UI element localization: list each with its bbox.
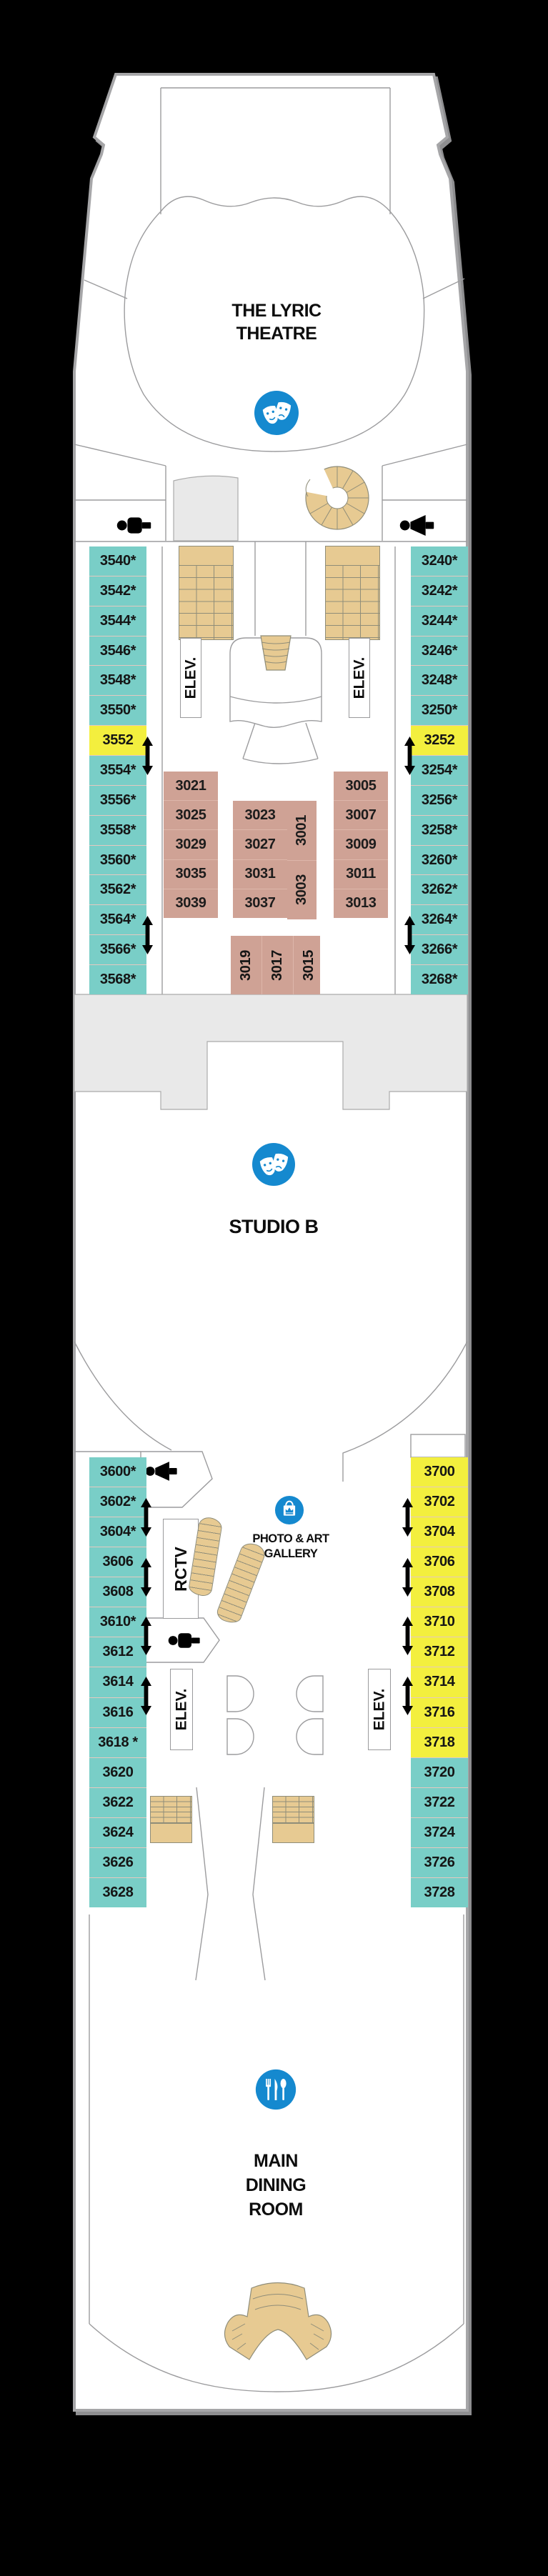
deck-connection-arrow <box>141 1617 151 1655</box>
fan-staircase-icon <box>261 636 291 670</box>
cabin-row: 3244* <box>411 606 468 636</box>
cabin-number: 3244* <box>422 613 457 629</box>
cabin-row: 3240* <box>411 546 468 576</box>
cabin-row: 3029 <box>164 829 218 859</box>
cabin-number: 3254* <box>422 762 457 779</box>
cabin-row: 3560* <box>89 845 146 875</box>
cabin-number: 3558* <box>100 822 136 839</box>
cabin-number: 3708 <box>424 1584 455 1600</box>
cabin-row: 3552 <box>89 725 146 755</box>
cabin-number: 3039 <box>176 895 206 912</box>
cabin-row: 3718 <box>411 1727 468 1757</box>
elevator-label: ELEV. <box>351 657 368 699</box>
stair-landing <box>326 546 379 566</box>
studio-b-title: STUDIO B <box>181 1214 367 1239</box>
cabin-number: 3718 <box>424 1734 455 1751</box>
cabin-number: 3564* <box>100 912 136 928</box>
cabin-number: 3011 <box>346 866 376 882</box>
staircase <box>272 1796 314 1843</box>
deck-connection-arrow <box>142 737 153 775</box>
cabin-row: 3562* <box>89 874 146 904</box>
center-cabin-column: 3001 3003 <box>287 801 317 919</box>
cabin-row: 3728 <box>411 1877 468 1907</box>
cabin-number: 3608 <box>103 1584 134 1600</box>
cabin-row: 3268* <box>411 964 468 994</box>
cabin-row: 3007 <box>334 800 388 829</box>
cabin-number: 3540* <box>100 553 136 569</box>
cabin-row: 3566* <box>89 934 146 964</box>
cabin-row: 3622 <box>89 1787 146 1817</box>
cabin-number: 3007 <box>346 807 377 824</box>
cabin-row: 3708 <box>411 1577 468 1607</box>
cabin-number: 3015 <box>301 950 317 981</box>
cabin-row: 3602* <box>89 1487 146 1517</box>
cabin-row: 3720 <box>411 1757 468 1787</box>
cabin-number: 3726 <box>424 1854 455 1871</box>
center-cabin-column: 3005 3007 3009 3011 3013 <box>334 772 388 918</box>
cabin-row: 3714 <box>411 1667 468 1697</box>
cabin-number: 3037 <box>245 895 276 912</box>
cabin-number: 3612 <box>103 1644 134 1660</box>
deck-connection-arrow <box>402 1677 413 1715</box>
theatre-masks-icon <box>254 391 299 435</box>
cabin-number: 3618 * <box>98 1734 137 1751</box>
cabin-number: 3258* <box>422 822 457 839</box>
elevator-label-box: ELEV. <box>180 638 201 718</box>
cabin-row: 3003 <box>287 860 317 920</box>
center-cabin-row-group: 3019 3017 3015 <box>231 936 320 994</box>
cabin-number: 3628 <box>103 1884 134 1901</box>
cabin-number: 3542* <box>100 583 136 599</box>
deck-connection-arrow <box>402 1558 413 1597</box>
cabin-number: 3256* <box>422 792 457 809</box>
cabin-row: 3606 <box>89 1547 146 1577</box>
cabin-row: 3025 <box>164 800 218 829</box>
cabin-number: 3250* <box>422 702 457 719</box>
cabin-row: 3262* <box>411 874 468 904</box>
elevator-label-box: ELEV. <box>368 1669 391 1750</box>
elevator-label: ELEV. <box>173 1689 190 1731</box>
cabin-number: 3025 <box>176 807 206 824</box>
cabin-row: 3706 <box>411 1547 468 1577</box>
cabin-number: 3606 <box>103 1554 134 1570</box>
cabin-number: 3550* <box>100 702 136 719</box>
cabin-row: 3013 <box>334 889 388 918</box>
cabin-row: 3546* <box>89 636 146 666</box>
cabin-row: 3035 <box>164 859 218 889</box>
staircase <box>325 546 380 640</box>
stair-landing <box>151 1823 191 1842</box>
stair-treads <box>151 1797 191 1823</box>
deck-connection-arrow <box>402 1498 413 1537</box>
cabin-number: 3023 <box>245 807 276 824</box>
cabin-number: 3704 <box>424 1524 455 1540</box>
cabin-number: 3600* <box>100 1464 136 1480</box>
cabin-number: 3616 <box>103 1704 134 1721</box>
cabin-number: 3268* <box>422 972 457 988</box>
cabin-number: 3602* <box>100 1494 136 1510</box>
cabin-number: 3027 <box>245 837 276 853</box>
cabin-row: 3254* <box>411 755 468 785</box>
cabin-number: 3552 <box>103 732 134 749</box>
cabin-number: 3019 <box>238 950 254 981</box>
cabin-number: 3262* <box>422 882 457 898</box>
cabin-row: 3614 <box>89 1667 146 1697</box>
cabin-number: 3242* <box>422 583 457 599</box>
cabin-number: 3728 <box>424 1884 455 1901</box>
stair-treads <box>273 1797 314 1823</box>
cabin-row: 3612 <box>89 1637 146 1667</box>
mens-restroom-icon <box>116 515 155 536</box>
rctv-label: RCTV <box>171 1547 191 1592</box>
cabin-row: 3554* <box>89 755 146 785</box>
cabin-number: 3001 <box>294 815 310 846</box>
cabin-row: 3001 <box>287 801 317 860</box>
cabin-row: 3620 <box>89 1757 146 1787</box>
cabin-row: 3626 <box>89 1847 146 1877</box>
cabin-row: 3548* <box>89 665 146 695</box>
cabin-row: 3544* <box>89 606 146 636</box>
deck-plan: THE LYRIC THEATRE ELEV. <box>0 0 548 2576</box>
womens-restroom-icon <box>399 514 438 537</box>
cabin-number: 3702 <box>424 1494 455 1510</box>
cabin-row: 3726 <box>411 1847 468 1877</box>
cabin-number: 3566* <box>100 942 136 958</box>
cabin-row: 3011 <box>334 859 388 889</box>
cabin-row: 3702 <box>411 1487 468 1517</box>
stage-area <box>174 476 238 541</box>
cabin-row: 3021 <box>164 772 218 800</box>
starboard-upper-cabin-column: 3240* 3242* 3244* 3246* 3248* 3250* 3252… <box>411 546 468 994</box>
cabin-row: 3722 <box>411 1787 468 1817</box>
mens-restroom-icon <box>168 1631 204 1650</box>
elevator-label-box: ELEV. <box>349 638 370 718</box>
elevator-label: ELEV. <box>182 657 199 699</box>
cabin-row: 3564* <box>89 904 146 934</box>
cabin-row: 3704 <box>411 1517 468 1547</box>
cabin-row: 3264* <box>411 904 468 934</box>
deck-connection-arrow <box>141 1558 151 1597</box>
cabin-row: 3039 <box>164 889 218 918</box>
center-cabin-column: 3023 3027 3031 3037 <box>233 801 287 918</box>
cabin-number: 3264* <box>422 912 457 928</box>
stair-landing <box>179 546 233 566</box>
deck-connection-arrow <box>141 1498 151 1537</box>
cabin-number: 3610* <box>100 1614 136 1630</box>
dining-room-title: MAIN DINING ROOM <box>183 2149 369 2222</box>
cabin-number: 3266* <box>422 942 457 958</box>
stair-treads <box>326 566 379 639</box>
cabin-row: 3616 <box>89 1697 146 1727</box>
cabin-row: 3248* <box>411 665 468 695</box>
cabin-row: 3037 <box>233 889 287 918</box>
cabin-row: 3716 <box>411 1697 468 1727</box>
cabin-row: 3017 <box>261 936 293 994</box>
cabin-number: 3716 <box>424 1704 455 1721</box>
elevator-label: ELEV. <box>371 1689 388 1731</box>
cabin-row: 3260* <box>411 845 468 875</box>
cabin-number: 3714 <box>424 1674 455 1690</box>
theatre-title: THE LYRIC THEATRE <box>184 299 369 345</box>
cabin-row: 3550* <box>89 695 146 725</box>
cabin-row: 3700 <box>411 1457 468 1487</box>
shopping-bag-icon <box>274 1495 304 1525</box>
cabin-number: 3260* <box>422 852 457 869</box>
cabin-number: 3560* <box>100 852 136 869</box>
center-cabin-column: 3021 3025 3029 3035 3039 <box>164 772 218 918</box>
cabin-row: 3712 <box>411 1637 468 1667</box>
dining-icon <box>254 2068 297 2111</box>
cabin-number: 3544* <box>100 613 136 629</box>
cabin-row: 3568* <box>89 964 146 994</box>
cabin-number: 3722 <box>424 1794 455 1811</box>
cabin-number: 3712 <box>424 1644 455 1660</box>
stair-treads <box>179 566 233 639</box>
studio-b-masks-icon <box>252 1143 295 1186</box>
womens-restroom-icon <box>145 1460 181 1482</box>
cabin-row: 3604* <box>89 1517 146 1547</box>
cabin-row: 3608 <box>89 1577 146 1607</box>
cabin-row: 3258* <box>411 815 468 845</box>
cabin-row: 3027 <box>233 829 287 859</box>
cabin-row: 3540* <box>89 546 146 576</box>
cabin-row: 3009 <box>334 829 388 859</box>
cabin-number: 3614 <box>103 1674 134 1690</box>
cabin-number: 3620 <box>103 1764 134 1781</box>
cabin-number: 3724 <box>424 1824 455 1841</box>
staircase <box>150 1796 192 1843</box>
cabin-row: 3600* <box>89 1457 146 1487</box>
cabin-number: 3706 <box>424 1554 455 1570</box>
cabin-row: 3628 <box>89 1877 146 1907</box>
cabin-number: 3005 <box>346 778 377 794</box>
cabin-number: 3548* <box>100 672 136 689</box>
cabin-row: 3023 <box>233 801 287 829</box>
port-lower-cabin-column: 3600* 3602* 3604* 3606 3608 3610* 3612 3… <box>89 1457 146 1907</box>
cabin-number: 3624 <box>103 1824 134 1841</box>
cabin-number: 3622 <box>103 1794 134 1811</box>
cabin-number: 3246* <box>422 643 457 659</box>
cabin-row: 3618 * <box>89 1727 146 1757</box>
stair-landing <box>273 1823 314 1842</box>
cabin-number: 3003 <box>294 874 310 905</box>
cabin-row: 3242* <box>411 576 468 606</box>
cabin-number: 3562* <box>100 882 136 898</box>
cabin-row: 3610* <box>89 1607 146 1637</box>
cabin-number: 3035 <box>176 866 206 882</box>
elevator-lobby-upper <box>230 636 322 727</box>
port-upper-cabin-column: 3540* 3542* 3544* 3546* 3548* 3550* 3552… <box>89 546 146 994</box>
cabin-row: 3015 <box>293 936 324 994</box>
cabin-row: 3266* <box>411 934 468 964</box>
cabin-number: 3626 <box>103 1854 134 1871</box>
cabin-row: 3005 <box>334 772 388 800</box>
deck-connection-arrow <box>404 916 415 954</box>
cabin-number: 3017 <box>269 950 286 981</box>
cabin-number: 3031 <box>245 866 276 882</box>
cabin-row: 3542* <box>89 576 146 606</box>
cabin-row: 3250* <box>411 695 468 725</box>
cabin-number: 3556* <box>100 792 136 809</box>
cabin-row: 3624 <box>89 1817 146 1847</box>
cabin-row: 3556* <box>89 785 146 815</box>
cabin-number: 3009 <box>346 837 377 853</box>
cabin-number: 3720 <box>424 1764 455 1781</box>
deck-connection-arrow <box>402 1617 413 1655</box>
elevator-label-box: ELEV. <box>170 1669 193 1750</box>
cabin-row: 3724 <box>411 1817 468 1847</box>
cabin-number: 3013 <box>346 895 377 912</box>
cabin-row: 3246* <box>411 636 468 666</box>
cabin-number: 3554* <box>100 762 136 779</box>
staircase <box>179 546 234 640</box>
cabin-number: 3021 <box>176 778 206 794</box>
cabin-number: 3568* <box>100 972 136 988</box>
cabin-number: 3240* <box>422 553 457 569</box>
cabin-row: 3710 <box>411 1607 468 1637</box>
cabin-row: 3019 <box>231 936 261 994</box>
deck-connection-arrow <box>141 1677 151 1715</box>
cabin-number: 3700 <box>424 1464 455 1480</box>
starboard-lower-cabin-column: 3700 3702 3704 3706 3708 3710 3712 3714 … <box>411 1457 468 1907</box>
cabin-number: 3546* <box>100 643 136 659</box>
cabin-number: 3604* <box>100 1524 136 1540</box>
cabin-row: 3252 <box>411 725 468 755</box>
cabin-number: 3252 <box>424 732 455 749</box>
cabin-number: 3248* <box>422 672 457 689</box>
cabin-number: 3710 <box>424 1614 455 1630</box>
cabin-row: 3256* <box>411 785 468 815</box>
deck-connection-arrow <box>142 916 153 954</box>
cabin-row: 3031 <box>233 859 287 889</box>
deck-connection-arrow <box>404 737 415 775</box>
cabin-number: 3029 <box>176 837 206 853</box>
cabin-row: 3558* <box>89 815 146 845</box>
